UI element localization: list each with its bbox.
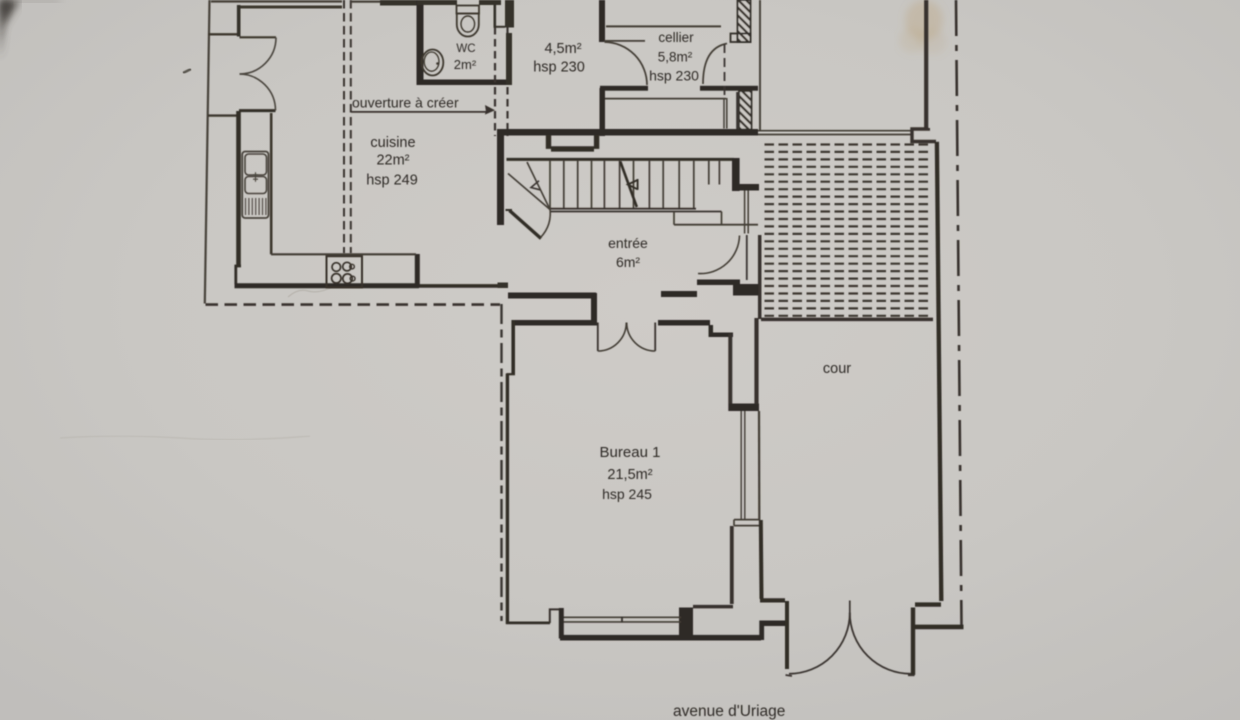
svg-text:cour: cour: [823, 361, 851, 377]
svg-text:hsp 230: hsp 230: [649, 68, 699, 84]
svg-text:Bureau 1: Bureau 1: [600, 444, 661, 461]
svg-text:4,5m²: 4,5m²: [544, 41, 581, 57]
svg-text:2m²: 2m²: [454, 57, 477, 72]
svg-text:ouverture à créer: ouverture à créer: [352, 95, 459, 111]
svg-text:cellier: cellier: [658, 30, 694, 45]
svg-text:6m²: 6m²: [616, 254, 640, 270]
svg-text:WC: WC: [456, 43, 475, 55]
svg-text:cuisine: cuisine: [370, 135, 415, 151]
svg-text:hsp 245: hsp 245: [602, 486, 652, 502]
svg-text:5,8m²: 5,8m²: [658, 50, 693, 65]
svg-text:21,5m²: 21,5m²: [607, 467, 652, 483]
svg-text:avenue d'Uriage: avenue d'Uriage: [673, 703, 785, 720]
svg-text:hsp 230: hsp 230: [533, 60, 585, 76]
svg-text:hsp 249: hsp 249: [366, 173, 418, 189]
svg-text:22m²: 22m²: [376, 153, 409, 169]
svg-text:entrée: entrée: [608, 235, 648, 251]
